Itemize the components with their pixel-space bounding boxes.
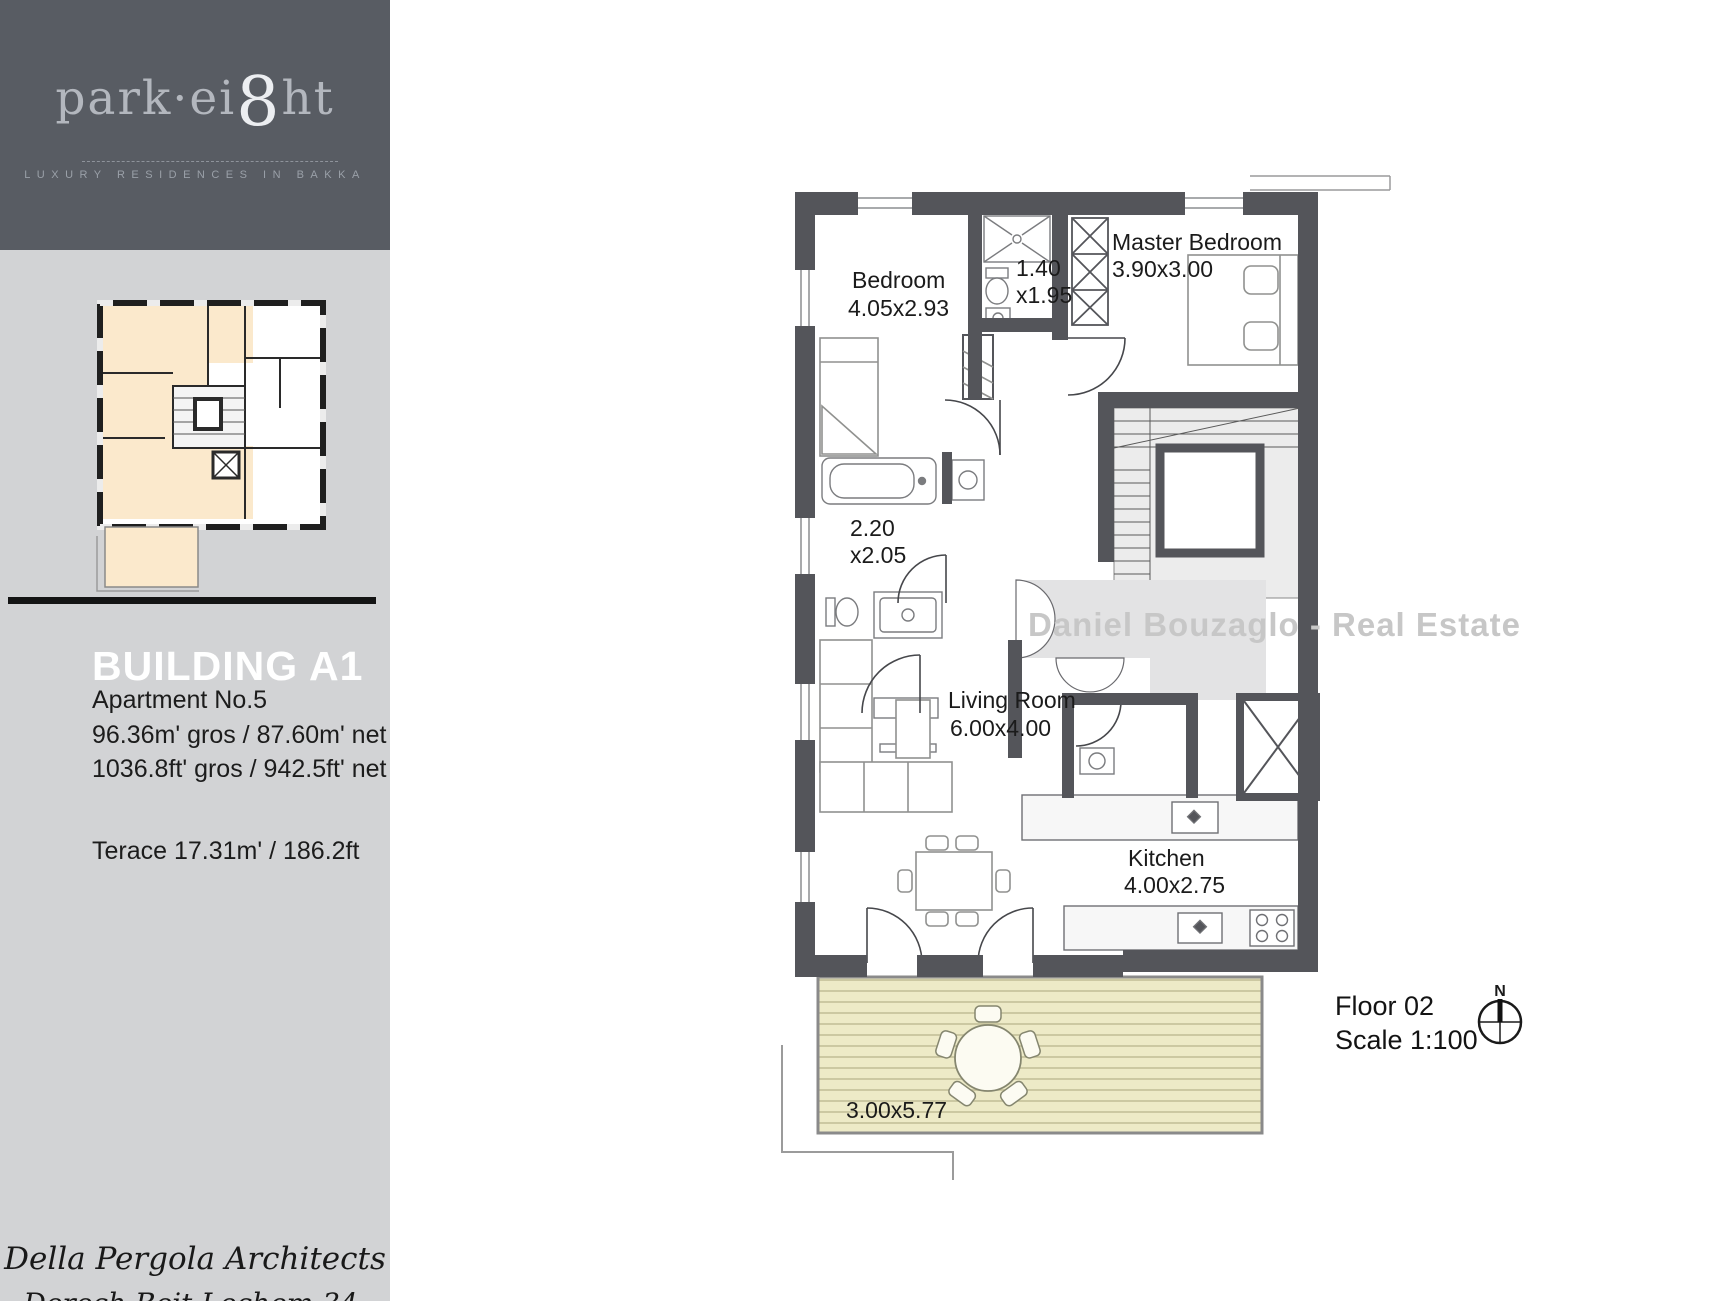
bath-dims-1: 2.20 [850,515,895,541]
dining-set [898,836,1010,926]
terrace-deck [782,977,1262,1180]
kitchen-label: Kitchen [1128,845,1205,871]
bath-dims-2: x2.05 [850,542,906,568]
compass-needle [1498,999,1503,1022]
living-room-dims: 6.00x4.00 [950,715,1051,741]
north-compass: N [1478,983,1522,1043]
shower-dims-1: 1.40 [1016,255,1061,281]
plan-scale: Scale 1:100 [1335,1025,1478,1056]
utility-room [1080,748,1114,774]
shower-dims-2: x1.95 [1016,282,1072,308]
elevator-shaft [1160,448,1260,553]
master-bedroom-label: Master Bedroom [1112,229,1282,255]
watermark: Daniel Bouzaglo - Real Estate [1028,606,1521,644]
floor-plan-drawing: Bedroom 4.05x2.93 1.40 x1.95 Master Bedr… [0,0,1711,1301]
kitchen-dims: 4.00x2.75 [1124,872,1225,898]
bedroom-dims: 4.05x2.93 [848,295,949,321]
floor-plan-sheet: park·ei8ht LUXURY RESIDENCES IN BAKKA [0,0,1711,1301]
master-wardrobe [1072,218,1108,325]
terrace-dims: 3.00x5.77 [846,1097,947,1123]
living-room-furniture [820,640,1010,926]
stair-core [1114,408,1300,598]
floor-number: Floor 02 [1335,991,1434,1022]
balcony-railing [1250,176,1390,190]
master-bedroom-dims: 3.90x3.00 [1112,256,1213,282]
bedroom-furniture [820,335,993,456]
living-room-label: Living Room [948,687,1076,713]
bedroom-label: Bedroom [852,267,945,293]
north-label: N [1494,983,1506,1000]
